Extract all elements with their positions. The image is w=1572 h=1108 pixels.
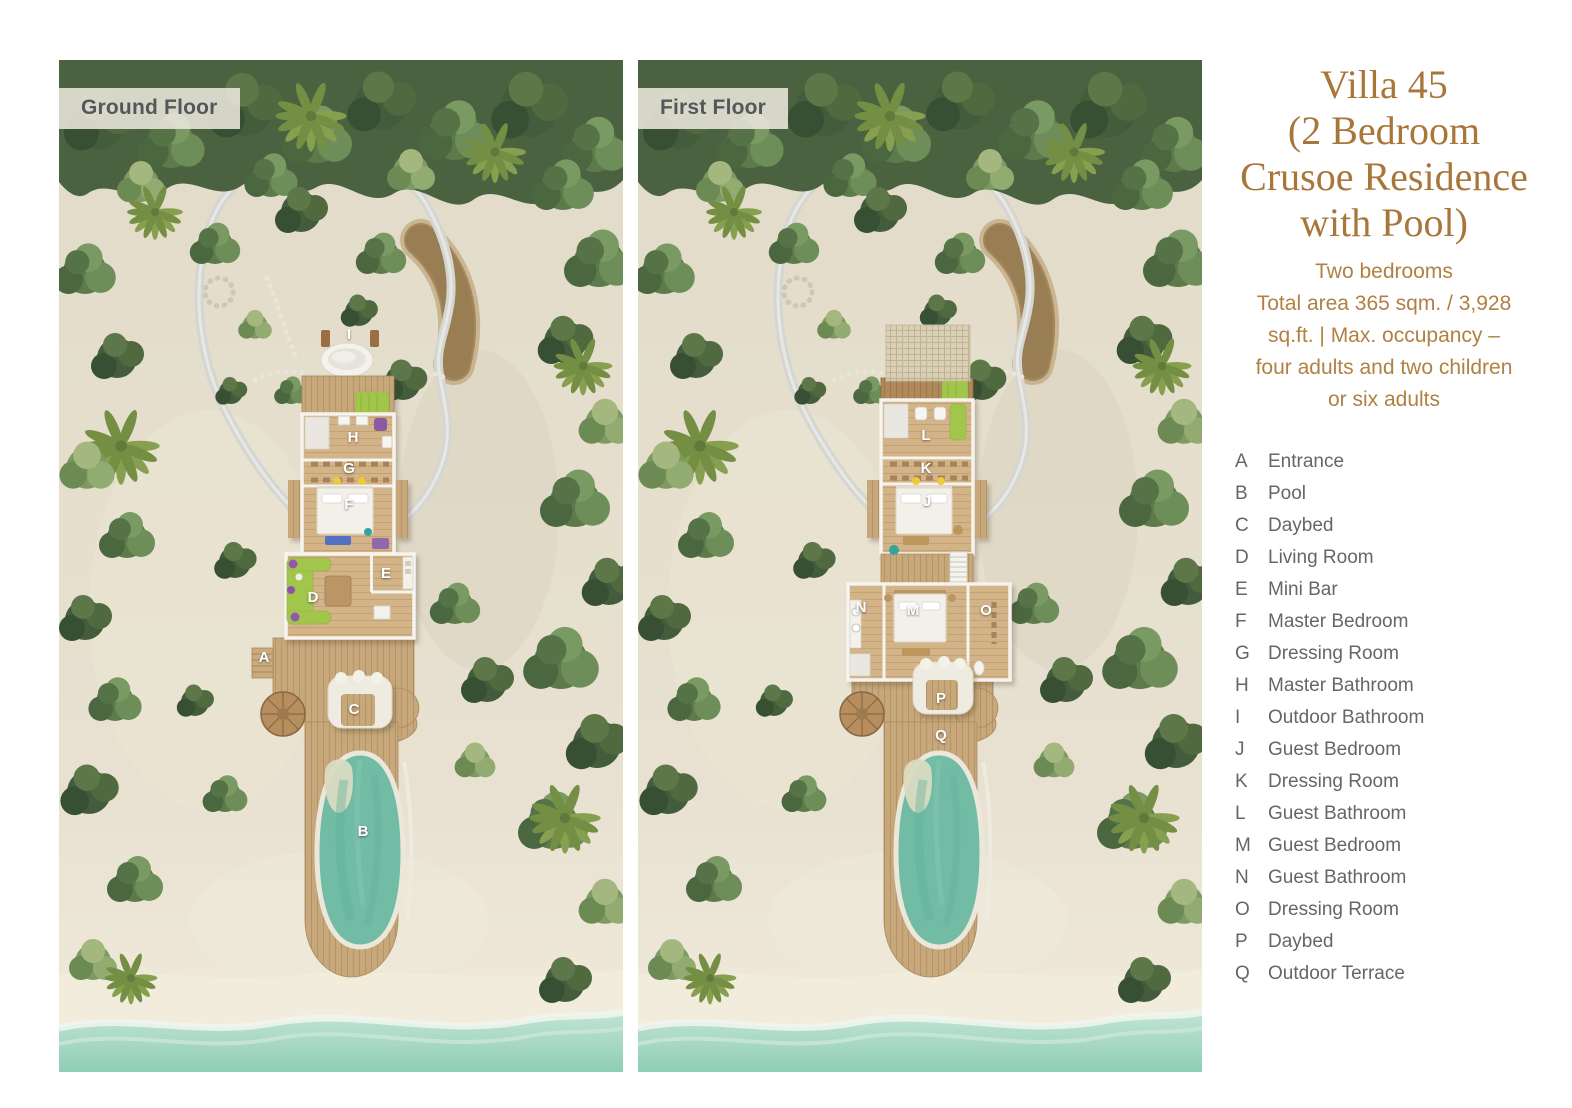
legend-label: Master Bathroom	[1268, 675, 1414, 697]
legend-key: M	[1235, 835, 1268, 857]
summary-line: Total area 365 sqm. / 3,928	[1206, 288, 1562, 320]
room-marker-Q: Q	[935, 727, 947, 744]
legend-row: MGuest Bedroom	[1235, 830, 1562, 862]
legend-key: N	[1235, 867, 1268, 889]
legend-row: AEntrance	[1235, 446, 1562, 478]
legend-label: Living Room	[1268, 547, 1374, 569]
room-marker-A: A	[259, 649, 270, 666]
legend-key: I	[1235, 707, 1268, 729]
legend-label: Outdoor Bathroom	[1268, 707, 1424, 729]
title-line: Crusoe Residence	[1206, 154, 1562, 200]
legend-key: C	[1235, 515, 1268, 537]
ground-floor-panel: IHGFEDACB Ground Floor	[59, 60, 623, 1072]
legend-label: Dressing Room	[1268, 899, 1399, 921]
legend-row: EMini Bar	[1235, 574, 1562, 606]
legend-label: Dressing Room	[1268, 643, 1399, 665]
legend-label: Dressing Room	[1268, 771, 1399, 793]
room-marker-H: H	[348, 429, 359, 446]
legend-row: ODressing Room	[1235, 894, 1562, 926]
title-line: Villa 45	[1206, 62, 1562, 108]
legend-row: GDressing Room	[1235, 638, 1562, 670]
legend-label: Guest Bedroom	[1268, 835, 1401, 857]
room-marker-K: K	[921, 460, 932, 477]
legend-label: Guest Bathroom	[1268, 803, 1406, 825]
legend-label: Pool	[1268, 483, 1306, 505]
title-line: with Pool)	[1206, 200, 1562, 246]
legend-row: DLiving Room	[1235, 542, 1562, 574]
legend-row: IOutdoor Bathroom	[1235, 702, 1562, 734]
legend-row: LGuest Bathroom	[1235, 798, 1562, 830]
legend-label: Entrance	[1268, 451, 1344, 473]
legend-label: Mini Bar	[1268, 579, 1338, 601]
legend-row: BPool	[1235, 478, 1562, 510]
room-marker-P: P	[936, 690, 946, 707]
ground-floor-plan-image: IHGFEDACB	[59, 60, 623, 1072]
room-marker-M: M	[907, 602, 920, 619]
room-marker-I: I	[347, 326, 351, 343]
legend-key: E	[1235, 579, 1268, 601]
legend-row: QOutdoor Terrace	[1235, 958, 1562, 990]
summary-line: sq.ft. | Max. occupancy –	[1206, 320, 1562, 352]
legend-label: Outdoor Terrace	[1268, 963, 1405, 985]
legend-key: A	[1235, 451, 1268, 473]
legend-label: Daybed	[1268, 931, 1334, 953]
daybed-c	[328, 670, 392, 728]
room-marker-B: B	[358, 823, 369, 840]
room-marker-D: D	[308, 589, 319, 606]
legend-row: PDaybed	[1235, 926, 1562, 958]
legend-row: KDressing Room	[1235, 766, 1562, 798]
legend-key: K	[1235, 771, 1268, 793]
floor-label-ground: Ground Floor	[59, 88, 240, 129]
legend-list: AEntranceBPoolCDaybedDLiving RoomEMini B…	[1206, 446, 1562, 990]
summary-line: four adults and two children	[1206, 352, 1562, 384]
legend-key: O	[1235, 899, 1268, 921]
room-marker-N: N	[856, 599, 867, 616]
legend-key: H	[1235, 675, 1268, 697]
room-marker-O: O	[980, 602, 992, 619]
legend-key: L	[1235, 803, 1268, 825]
room-marker-L: L	[921, 427, 930, 444]
first-floor-plan-image: LKJNMOPQ	[638, 60, 1202, 1072]
legend-label: Master Bedroom	[1268, 611, 1408, 633]
legend-key: G	[1235, 643, 1268, 665]
legend-key: B	[1235, 483, 1268, 505]
title-line: (2 Bedroom	[1206, 108, 1562, 154]
room-marker-J: J	[923, 493, 931, 510]
legend-label: Daybed	[1268, 515, 1334, 537]
legend-label: Guest Bathroom	[1268, 867, 1406, 889]
summary-line: Two bedrooms	[1206, 256, 1562, 288]
first-floor-panel: LKJNMOPQ First Floor	[638, 60, 1202, 1072]
legend-row: JGuest Bedroom	[1235, 734, 1562, 766]
room-marker-E: E	[381, 565, 391, 582]
legend-label: Guest Bedroom	[1268, 739, 1401, 761]
legend-row: FMaster Bedroom	[1235, 606, 1562, 638]
villa-floorplan-page: IHGFEDACB Ground Floor	[0, 0, 1572, 1108]
room-marker-C: C	[349, 701, 360, 718]
legend-row: NGuest Bathroom	[1235, 862, 1562, 894]
summary-line: or six adults	[1206, 384, 1562, 416]
room-marker-G: G	[343, 460, 355, 477]
floor-label-first: First Floor	[638, 88, 788, 129]
legend-key: F	[1235, 611, 1268, 633]
legend-key: P	[1235, 931, 1268, 953]
villa-summary: Two bedrooms Total area 365 sqm. / 3,928…	[1206, 256, 1562, 416]
legend-row: HMaster Bathroom	[1235, 670, 1562, 702]
legend-row: CDaybed	[1235, 510, 1562, 542]
room-marker-F: F	[344, 496, 353, 513]
legend-key: Q	[1235, 963, 1268, 985]
legend-key: J	[1235, 739, 1268, 761]
legend-key: D	[1235, 547, 1268, 569]
villa-info-panel: Villa 45 (2 Bedroom Crusoe Residence wit…	[1206, 52, 1562, 990]
villa-title: Villa 45 (2 Bedroom Crusoe Residence wit…	[1206, 52, 1562, 246]
